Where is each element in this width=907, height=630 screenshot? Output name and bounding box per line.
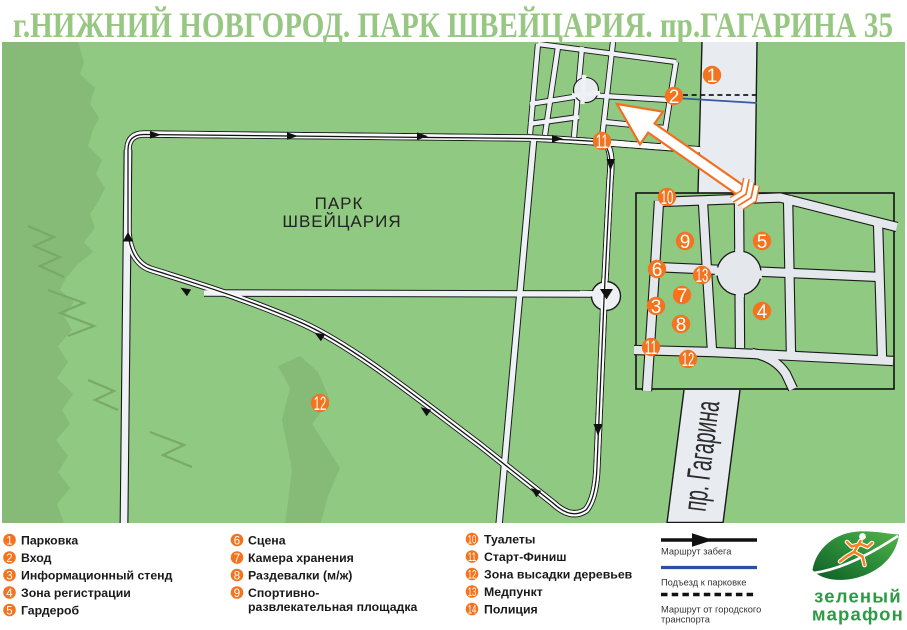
svg-text:11: 11 — [468, 552, 477, 564]
svg-text:Зона регистрации: Зона регистрации — [21, 586, 131, 600]
svg-text:12: 12 — [682, 350, 695, 371]
svg-text:6: 6 — [234, 535, 240, 547]
svg-text:9: 9 — [680, 232, 691, 253]
svg-text:2: 2 — [669, 87, 680, 108]
svg-text:11: 11 — [596, 132, 609, 153]
svg-text:3: 3 — [6, 570, 12, 582]
svg-text:7: 7 — [234, 553, 240, 565]
svg-text:ПАРК: ПАРК — [315, 194, 364, 213]
svg-text:Подъезд к парковке: Подъезд к парковке — [661, 578, 746, 588]
svg-text:Сцена: Сцена — [248, 534, 286, 548]
svg-text:12: 12 — [314, 394, 327, 415]
svg-text:Зона высадки деревьев: Зона высадки деревьев — [484, 568, 633, 582]
svg-text:9: 9 — [234, 588, 240, 600]
svg-text:11: 11 — [645, 338, 658, 359]
svg-text:5: 5 — [6, 605, 12, 617]
svg-text:13: 13 — [696, 266, 709, 287]
svg-text:8: 8 — [676, 315, 687, 336]
svg-text:12: 12 — [468, 569, 477, 581]
svg-text:марафон: марафон — [812, 604, 904, 625]
svg-text:ШВЕЙЦАРИЯ: ШВЕЙЦАРИЯ — [282, 212, 401, 231]
svg-text:10: 10 — [661, 188, 674, 209]
svg-text:Медпункт: Медпункт — [484, 585, 543, 599]
svg-text:Камера хранения: Камера хранения — [248, 551, 354, 565]
svg-text:Туалеты: Туалеты — [484, 533, 535, 547]
svg-text:2: 2 — [6, 553, 12, 565]
svg-text:транспорта: транспорта — [661, 615, 711, 625]
svg-text:Гардероб: Гардероб — [21, 604, 80, 618]
svg-text:4: 4 — [757, 302, 768, 323]
svg-text:Информационный стенд: Информационный стенд — [21, 569, 173, 583]
svg-text:5: 5 — [757, 232, 768, 253]
svg-text:3: 3 — [651, 297, 662, 318]
svg-text:развлекательная площадка: развлекательная площадка — [248, 600, 417, 614]
svg-text:Вход: Вход — [21, 551, 52, 565]
svg-text:13: 13 — [468, 587, 477, 599]
svg-text:г.НИЖНИЙ НОВГОРОД. ПАРК ШВЕЙЦА: г.НИЖНИЙ НОВГОРОД. ПАРК ШВЕЙЦАРИЯ. пр.ГА… — [13, 5, 893, 45]
svg-text:1: 1 — [6, 535, 12, 547]
svg-text:14: 14 — [468, 604, 477, 616]
svg-text:Парковка: Парковка — [21, 534, 78, 548]
svg-text:Маршрут от городского: Маршрут от городского — [661, 605, 761, 615]
svg-text:Старт-Финиш: Старт-Финиш — [484, 550, 567, 564]
svg-text:10: 10 — [468, 534, 477, 546]
svg-text:Спортивно-: Спортивно- — [248, 586, 319, 600]
svg-text:7: 7 — [677, 286, 688, 307]
svg-text:1: 1 — [707, 66, 718, 87]
svg-text:4: 4 — [6, 588, 13, 600]
svg-text:Маршрут забега: Маршрут забега — [661, 547, 732, 557]
svg-text:Раздевалки (м/ж): Раздевалки (м/ж) — [248, 569, 352, 583]
svg-text:8: 8 — [234, 570, 240, 582]
svg-text:6: 6 — [652, 260, 663, 281]
svg-text:Полиция: Полиция — [484, 603, 538, 617]
